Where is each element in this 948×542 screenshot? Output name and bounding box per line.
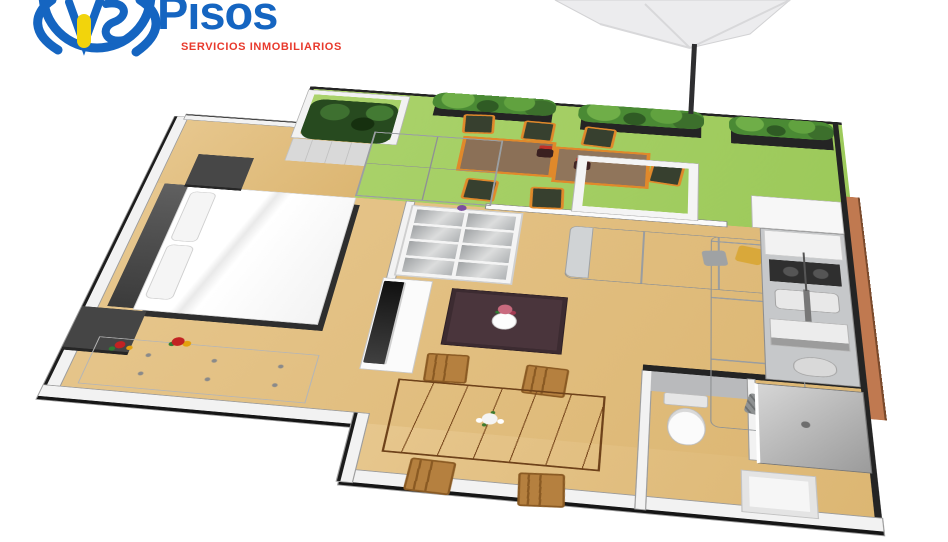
floorplan: [0, 78, 888, 532]
logo-monogram-icon: [14, 0, 164, 62]
shelf-cell: [456, 261, 509, 279]
glass-door-frame: [572, 156, 698, 221]
dining-chair-4: [517, 472, 565, 508]
parasol-canopy: [555, 0, 790, 48]
shelf-cell: [410, 225, 461, 242]
shelf-cell: [406, 241, 458, 259]
flower-pot-1: [536, 148, 554, 158]
parasol: [540, 0, 840, 130]
shelf-cell: [466, 213, 516, 230]
dining-chair-1: [423, 353, 470, 384]
brand-name: Pisos: [157, 0, 277, 39]
shelf-cell: [462, 229, 513, 246]
dining-chair-3: [403, 457, 457, 495]
page: Pisos SERVICIOS INMOBILIARIOS: [0, 0, 948, 542]
sofa-armrest: [564, 226, 593, 279]
outdoor-chair-5: [529, 187, 564, 210]
parasol-pole: [688, 44, 697, 114]
cushion-grey: [701, 251, 728, 266]
logo-door: [77, 14, 91, 48]
shelf-cell: [414, 209, 465, 226]
shelving-unit: [394, 205, 524, 285]
shelf-cell: [402, 257, 455, 275]
logo: Pisos SERVICIOS INMOBILIARIOS: [0, 0, 360, 80]
washbasin: [741, 470, 819, 520]
mirrored-wardrobe: [355, 132, 503, 207]
outdoor-chair-1: [462, 114, 496, 134]
shower: [755, 383, 873, 474]
brand-tagline: SERVICIOS INMOBILIARIOS: [181, 41, 342, 53]
shelf-cell: [459, 245, 511, 263]
